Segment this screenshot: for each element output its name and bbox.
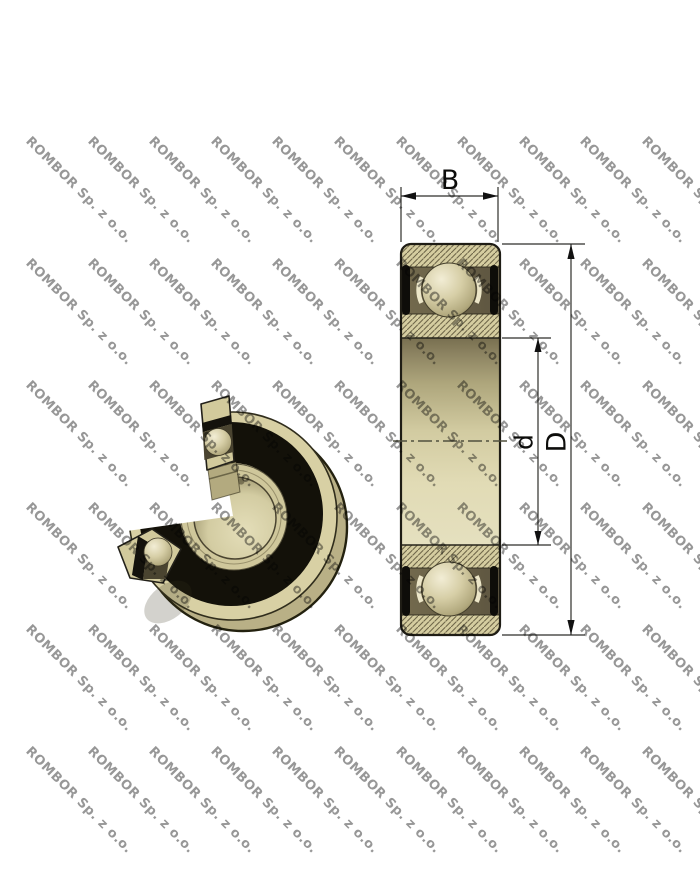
bearing-section-view bbox=[393, 244, 509, 635]
3d-cut-sector bbox=[0, 290, 233, 560]
section-ball-bottom bbox=[422, 562, 476, 616]
section-seal-bottom-right bbox=[490, 566, 498, 616]
dimension-label-B: B bbox=[441, 167, 460, 194]
section-seal-top-right bbox=[490, 265, 498, 315]
3d-ball-bottom bbox=[144, 538, 172, 566]
section-top-inner-hatch bbox=[401, 314, 500, 338]
dimension-label-d: d bbox=[512, 434, 537, 450]
bearing-3d-view bbox=[0, 290, 347, 632]
bearing-drawing-svg bbox=[0, 0, 700, 869]
section-seal-bottom-left bbox=[402, 566, 410, 616]
3d-cut-face-top bbox=[201, 396, 234, 470]
section-ball-top bbox=[422, 263, 476, 317]
dimension-label-D: D bbox=[544, 432, 571, 453]
3d-ball-top bbox=[205, 429, 232, 456]
section-seal-top-left bbox=[402, 265, 410, 315]
bearing-technical-drawing: B D d ROMBOR Sp. z o.o.ROMBOR Sp. z o.o.… bbox=[0, 0, 700, 869]
section-bottom-inner-hatch bbox=[401, 615, 500, 635]
